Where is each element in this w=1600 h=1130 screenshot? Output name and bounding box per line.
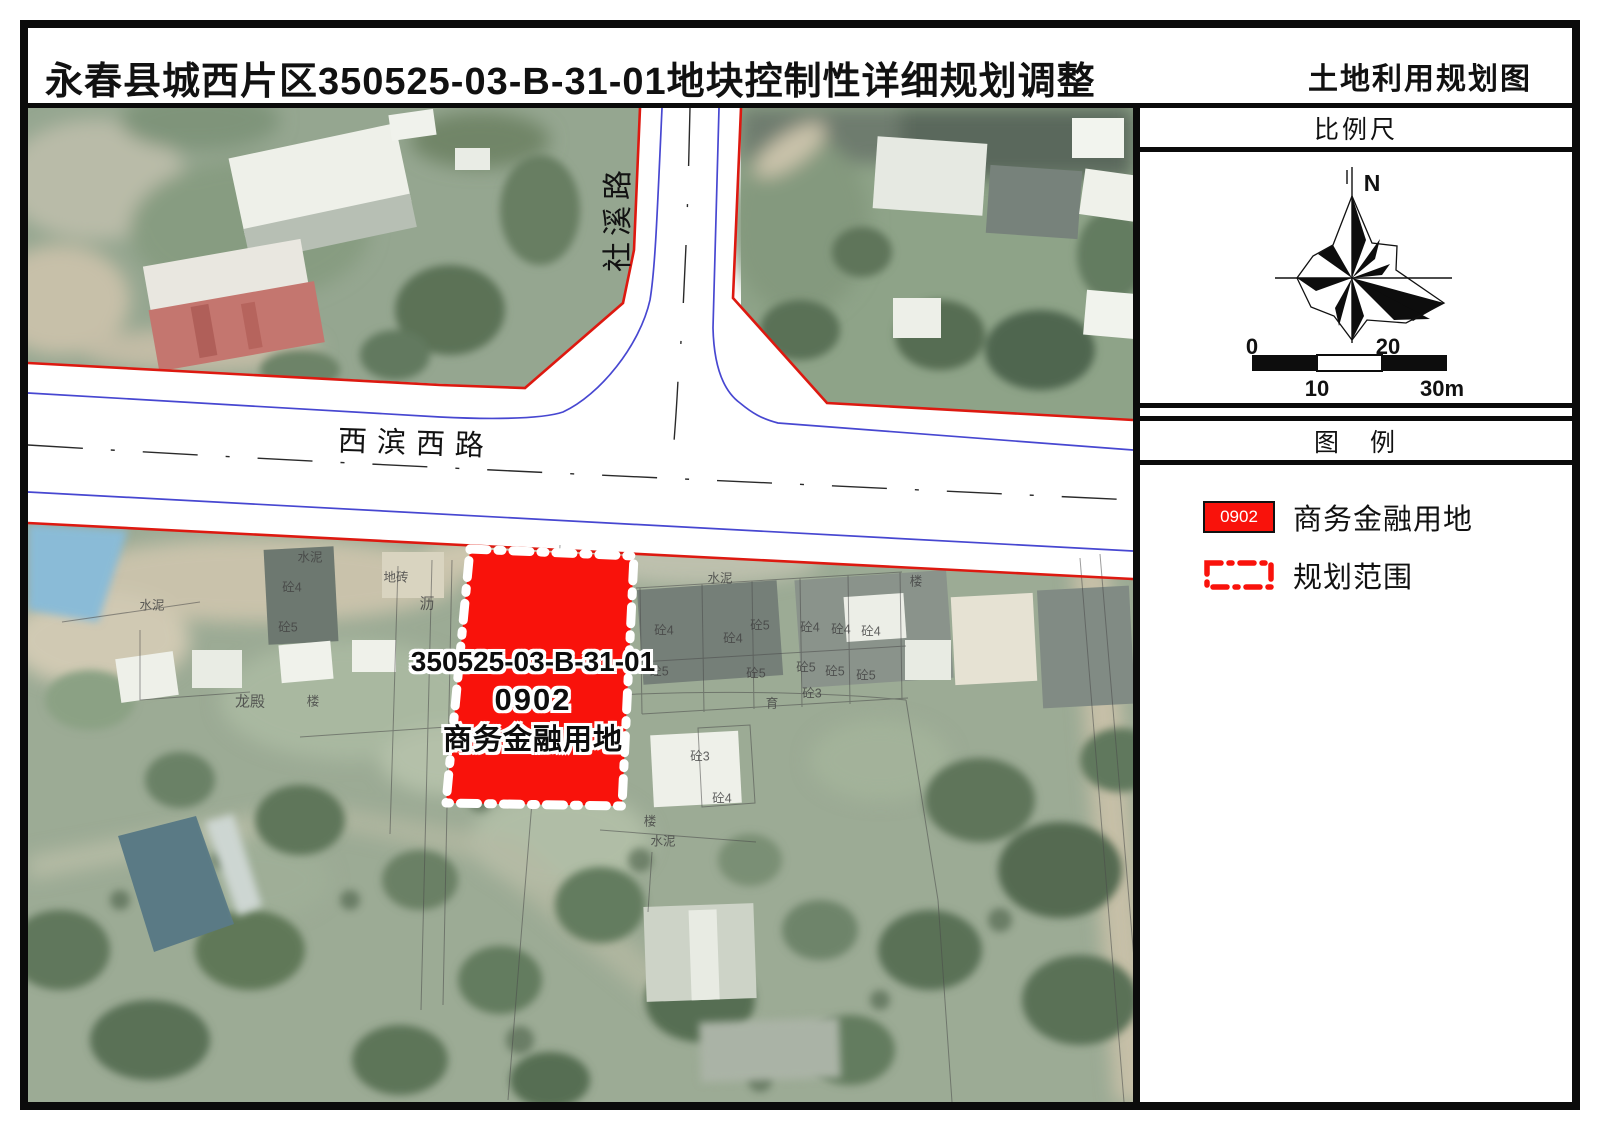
compass-rose-icon [1297,196,1444,340]
legend-item-boundary: 规划范围 [1203,559,1413,591]
scale-section-title: 比例尺 [1140,108,1572,152]
north-label: N [1364,170,1381,197]
drawing-title: 土地利用规划图 [1308,54,1532,98]
scale-tick-20: 20 [1376,334,1400,360]
page: 永春县城西片区350525-03-B-31-01地块控制性详细规划调整 土地利用… [0,0,1600,1130]
aerial-top-left [28,108,640,393]
scale-tick-0: 0 [1246,334,1258,360]
plot-use-code: 0902 [366,682,700,718]
page-title: 永春县城西片区350525-03-B-31-01地块控制性详细规划调整 [45,50,1096,105]
legend-label-boundary: 规划范围 [1293,554,1413,596]
plot-parcel-code: 350525-03-B-31-01 [366,646,700,678]
legend-swatch-boundary [1203,559,1275,591]
compass-and-scalebar [1140,152,1572,408]
legend-section-title: 图 例 [1140,421,1572,465]
scale-tick-10: 10 [1305,376,1329,402]
scale-bar [1252,355,1447,371]
road-label-shexi: 社溪路 [593,163,637,273]
road-label-xibinxi: 西滨西路 [337,417,494,464]
plot-use-label: 商务金融用地 [366,716,700,758]
legend-label-commercial: 商务金融用地 [1293,496,1473,538]
scale-tick-30m: 30m [1420,376,1464,402]
header-divider [28,103,1572,108]
sidebar-divider [1133,108,1140,1102]
land-use-map [28,108,1133,1102]
legend-item-commercial: 0902 商务金融用地 [1203,501,1473,533]
legend-swatch-commercial: 0902 [1203,501,1275,533]
map-panel [28,108,1133,1102]
legend-swatch-code: 0902 [1220,507,1258,527]
